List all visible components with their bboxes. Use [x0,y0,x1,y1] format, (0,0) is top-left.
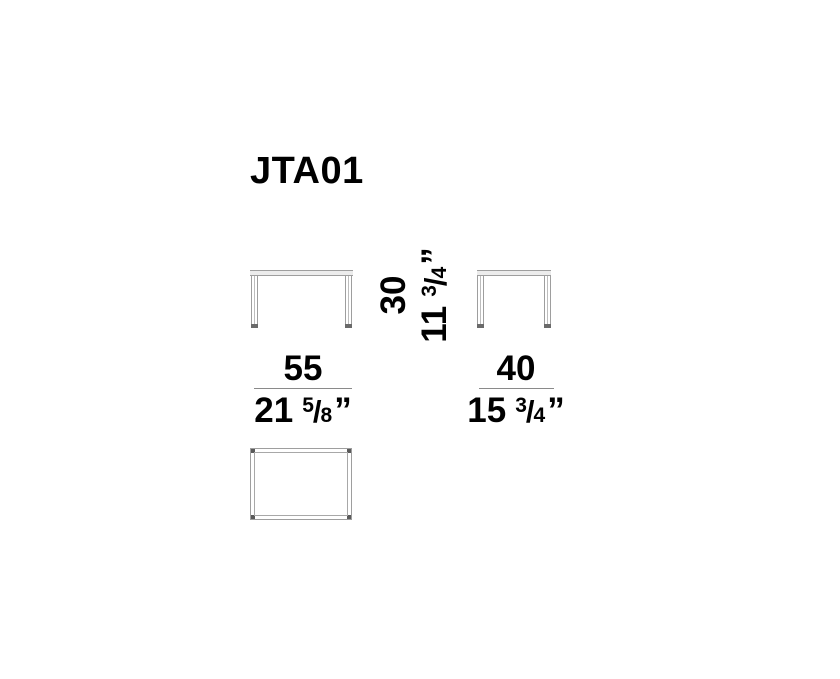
front-left-foot [251,324,258,328]
front-right-foot [345,324,352,328]
front-view-drawing [250,270,353,328]
side-right-leg [544,275,551,328]
depth-imperial-value: 153/4” [467,392,564,435]
side-left-leg [477,275,484,328]
dimension-diagram: JTA01 30 113/4” 55 [0,0,840,679]
front-right-leg-inner-line [348,275,349,328]
width-imperial-whole: 21 [254,391,293,430]
width-fraction-denominator: 8 [321,404,333,427]
width-imperial-value: 215/8” [254,392,351,435]
height-imperial-whole: 11 [415,306,454,343]
top-view-inner-edge [254,452,348,516]
depth-metric-value: 40 [497,352,536,386]
front-left-leg [251,275,258,328]
height-metric-value: 30 [377,276,411,315]
front-tabletop [250,270,353,276]
width-inches-mark: ” [334,391,352,430]
height-dimension: 30 113/4” [377,235,457,355]
depth-fraction-numerator: 3 [515,394,527,417]
width-dimension-line [254,388,352,389]
depth-inches-mark: ” [547,391,565,430]
product-code-title: JTA01 [250,152,364,190]
front-left-leg-inner-line [254,275,255,328]
side-right-foot [544,324,551,328]
side-view-drawing [477,270,551,328]
depth-dimension-line [479,388,554,389]
depth-dimension: 40 153/4” [455,352,577,435]
side-left-foot [477,324,484,328]
height-inches-mark: ” [415,247,454,265]
height-fraction-numerator: 3 [418,285,441,297]
side-right-leg-inner-line [547,275,548,328]
depth-fraction-denominator: 4 [534,404,546,427]
side-left-leg-inner-line [480,275,481,328]
side-tabletop [477,270,551,276]
height-fraction-denominator: 4 [428,267,451,279]
width-metric-value: 55 [284,352,323,386]
width-dimension: 55 215/8” [242,352,364,435]
depth-imperial-whole: 15 [467,391,506,430]
width-fraction-numerator: 5 [302,394,314,417]
height-imperial-value: 113/4” [416,247,459,343]
front-right-leg [345,275,352,328]
top-view-drawing [250,448,352,520]
